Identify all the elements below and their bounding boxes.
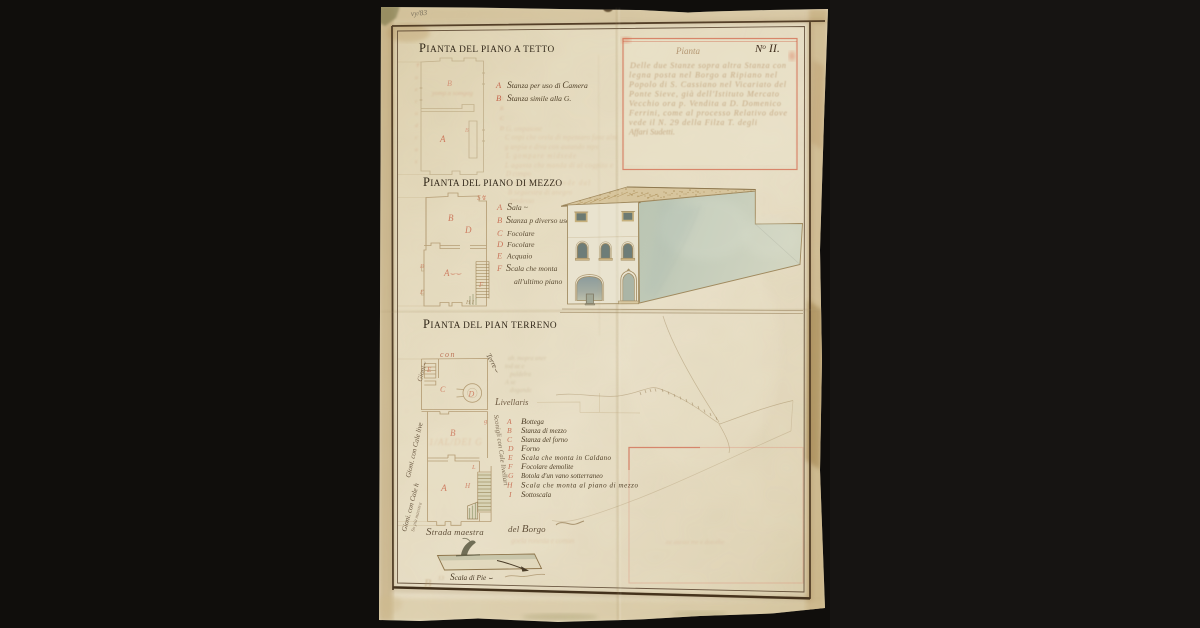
- svg-text:C: C: [440, 385, 446, 394]
- svg-text:B: B: [424, 576, 432, 590]
- svg-text:g anpia e diva con autando mps: g anpia e diva con autando mps: [505, 144, 598, 151]
- svg-text:Affari Sudetti.: Affari Sudetti.: [628, 128, 675, 137]
- svg-text:A: A: [440, 484, 447, 494]
- svg-text:Ferrini, come al processo Rela: Ferrini, come al processo Relativo dove: [628, 109, 787, 118]
- svg-text:a: a: [415, 75, 418, 81]
- svg-text:E: E: [507, 453, 513, 462]
- svg-text:I: I: [508, 490, 512, 499]
- svg-text:Focolare: Focolare: [506, 240, 535, 249]
- svg-text:B: B: [448, 213, 454, 223]
- svg-text:C: C: [497, 228, 503, 238]
- svg-text:Stanza simile alla G.: Stanza simile alla G.: [507, 94, 571, 104]
- svg-text:D: D: [507, 444, 514, 453]
- svg-text:No II.: No II.: [754, 41, 780, 55]
- svg-text:B: B: [507, 426, 512, 435]
- svg-text:ab. mopra aner: ab. mopra aner: [508, 355, 547, 362]
- svg-text:vede il N. 29 della Filza T. d: vede il N. 29 della Filza T. degli: [629, 118, 758, 127]
- svg-text:tod az e: tod az e: [505, 363, 525, 370]
- svg-text:Livellaris: Livellaris: [494, 397, 529, 408]
- svg-text:L gompare midsede: L gompare midsede: [505, 153, 576, 160]
- svg-text:S↯: S↯: [477, 194, 487, 202]
- svg-text:Focolare demolite: Focolare demolite: [520, 461, 573, 471]
- svg-text:✝: ✝: [415, 62, 420, 69]
- svg-text:L aganta che manda di al cogpi: L aganta che manda di al cogpito e: [504, 163, 613, 170]
- svg-text:F: F: [507, 462, 513, 471]
- svg-text:Stanza di mezzo: Stanza di mezzo: [521, 425, 567, 435]
- svg-text:vy/83: vy/83: [411, 8, 428, 18]
- svg-text:13: 13: [438, 576, 444, 582]
- svg-text:Ponte Sieve, già dell'Istituto: Ponte Sieve, già dell'Istituto Mercato: [628, 90, 779, 99]
- svg-text:Scala che monta in Caldano: Scala che monta in Caldano: [521, 452, 612, 462]
- svg-text:A: A: [439, 134, 446, 144]
- svg-text:B: B: [497, 215, 502, 225]
- svg-text:E: E: [419, 290, 424, 296]
- svg-text:Botola d'un vano sotterraneo: Botola d'un vano sotterraneo: [521, 472, 603, 480]
- svg-text:B: B: [465, 128, 469, 134]
- svg-text:Pianta: Pianta: [675, 46, 700, 56]
- svg-text:Stanza del forno: Stanza del forno: [521, 434, 568, 444]
- svg-text:B: B: [447, 79, 452, 88]
- svg-text:F: F: [496, 263, 503, 273]
- svg-text:Stanza p diverso uso: Stanza p diverso uso: [506, 215, 570, 226]
- svg-text:G. ompasone: G. ompasone: [506, 126, 542, 133]
- svg-text:Acquaio: Acquaio: [506, 252, 533, 261]
- svg-text:A se: A se: [504, 379, 516, 386]
- svg-text:legna posta nel Borgo a Ripian: legna posta nel Borgo a Ripiano nel: [629, 71, 778, 80]
- svg-text:L: L: [471, 464, 476, 471]
- svg-text:F: F: [478, 281, 484, 289]
- svg-text:o: o: [415, 111, 418, 117]
- svg-text:Focolare: Focolare: [506, 229, 535, 238]
- svg-text:Stanza per uso di Camera: Stanza per uso di Camera: [507, 80, 588, 91]
- svg-text:puldelra: puldelra: [509, 371, 531, 378]
- svg-text:con: con: [440, 350, 456, 359]
- svg-text:H: H: [464, 482, 471, 490]
- svg-text:Scala che monta: Scala che monta: [506, 263, 558, 274]
- svg-text:Vecchio ora p. Vendita a D. Do: Vecchio ora p. Vendita a D. Domenico: [629, 99, 781, 108]
- svg-text:a: a: [415, 147, 418, 153]
- svg-text:C onpi che orela di mpentaro f: C onpi che orela di mpentaro fane alm: [505, 135, 617, 142]
- svg-text:A: A: [499, 96, 504, 102]
- svg-text:A: A: [496, 202, 503, 212]
- svg-text:dogande: dogande: [510, 387, 532, 394]
- svg-text:Strada maestra: Strada maestra: [426, 526, 484, 538]
- svg-text:B seguestra di anegro: B seguestra di anegro: [508, 190, 573, 197]
- svg-text:D: D: [419, 264, 425, 270]
- svg-text:E: E: [496, 251, 503, 261]
- svg-text:D: D: [499, 126, 504, 132]
- svg-text:D compo: D compo: [505, 171, 531, 178]
- svg-text:s: s: [415, 159, 417, 165]
- svg-text:goela ronesta e comun: goela ronesta e comun: [511, 537, 575, 545]
- svg-text:D: D: [496, 239, 504, 249]
- svg-text:B engro e supende dal: B engro e supende dal: [506, 180, 590, 187]
- svg-text:D: D: [468, 390, 475, 399]
- svg-text:Delle due Stanze sopra altra S: Delle due Stanze sopra altra Stanza con: [629, 61, 786, 70]
- svg-text:Popolo di S. Cassiano nel Vica: Popolo di S. Cassiano nel Vicariato del: [628, 80, 787, 89]
- svg-text:Scala di Pie ⌣: Scala di Pie ⌣: [450, 572, 493, 582]
- svg-text:all'ultimo piano: all'ultimo piano: [514, 277, 562, 286]
- svg-text:yomp.a somgag: yomp.a somgag: [431, 90, 474, 97]
- svg-text:1/AL/DEI G: 1/AL/DEI G: [429, 437, 483, 447]
- svg-text:predesso: predesso: [509, 198, 535, 205]
- svg-text:ne atesta me e dotothe: ne atesta me e dotothe: [666, 539, 724, 546]
- svg-text:D: D: [464, 225, 472, 235]
- svg-text:Sottoscala: Sottoscala: [521, 489, 552, 499]
- svg-text:d: d: [415, 123, 418, 129]
- svg-text:C: C: [500, 116, 504, 122]
- svg-text:del Borgo: del Borgo: [508, 523, 546, 535]
- svg-text:A: A: [495, 80, 502, 90]
- svg-text:H I: H I: [465, 300, 475, 306]
- svg-text:A⌣⌣: A⌣⌣: [443, 268, 462, 278]
- svg-text:A: A: [506, 417, 512, 426]
